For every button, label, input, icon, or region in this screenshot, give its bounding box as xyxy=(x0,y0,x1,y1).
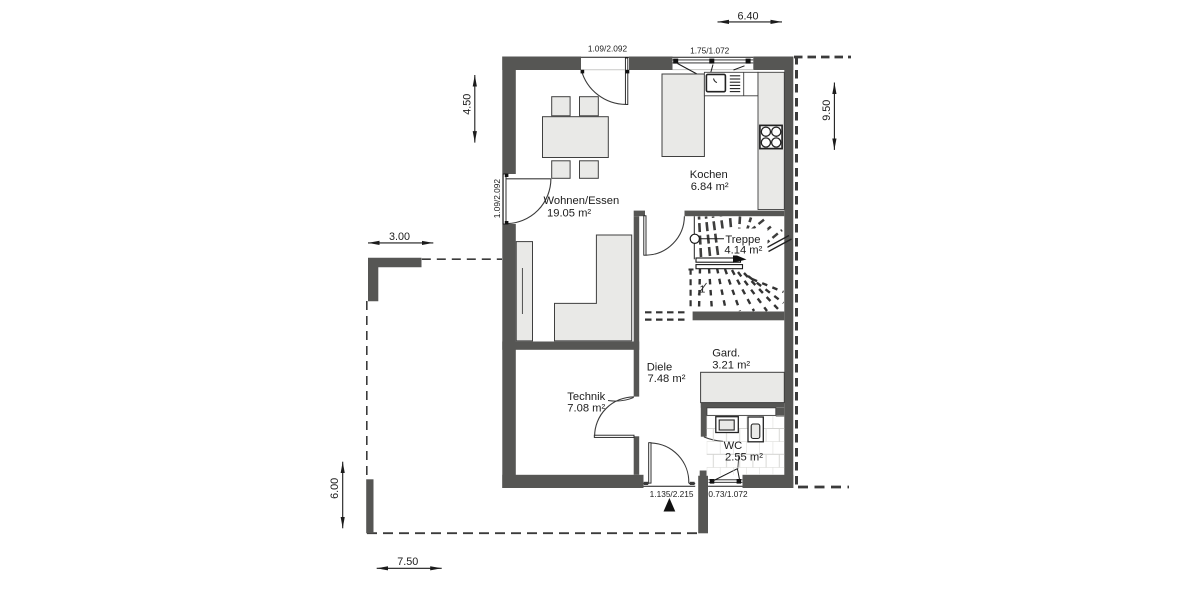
svg-text:7.48 m²: 7.48 m² xyxy=(648,373,686,385)
svg-text:Kochen: Kochen xyxy=(690,169,728,181)
svg-text:3.00: 3.00 xyxy=(389,231,410,243)
svg-text:6.84 m²: 6.84 m² xyxy=(691,181,729,193)
svg-text:6.40: 6.40 xyxy=(737,10,758,22)
svg-text:4.50: 4.50 xyxy=(461,94,473,115)
svg-text:1.09/2.092: 1.09/2.092 xyxy=(588,43,628,53)
svg-text:Technik: Technik xyxy=(567,391,605,403)
svg-text:19.05 m²: 19.05 m² xyxy=(547,208,591,220)
svg-text:4.14 m²: 4.14 m² xyxy=(724,245,762,257)
svg-text:WC: WC xyxy=(724,440,743,452)
svg-text:1.135/2.215: 1.135/2.215 xyxy=(650,489,694,499)
svg-text:3.21 m²: 3.21 m² xyxy=(712,360,750,372)
svg-text:1.09/2.092: 1.09/2.092 xyxy=(492,179,502,219)
svg-text:2.55 m²: 2.55 m² xyxy=(725,452,763,464)
svg-text:Diele: Diele xyxy=(647,362,673,374)
svg-text:0.73/1.072: 0.73/1.072 xyxy=(708,489,748,499)
svg-text:1.75/1.072: 1.75/1.072 xyxy=(690,46,730,56)
svg-text:9.50: 9.50 xyxy=(821,100,833,121)
svg-text:7.50: 7.50 xyxy=(397,556,418,568)
svg-text:Wohnen/Essen: Wohnen/Essen xyxy=(544,195,620,207)
svg-text:6.00: 6.00 xyxy=(329,478,341,499)
svg-text:Gard.: Gard. xyxy=(712,348,740,360)
svg-text:7.08 m²: 7.08 m² xyxy=(567,403,605,415)
